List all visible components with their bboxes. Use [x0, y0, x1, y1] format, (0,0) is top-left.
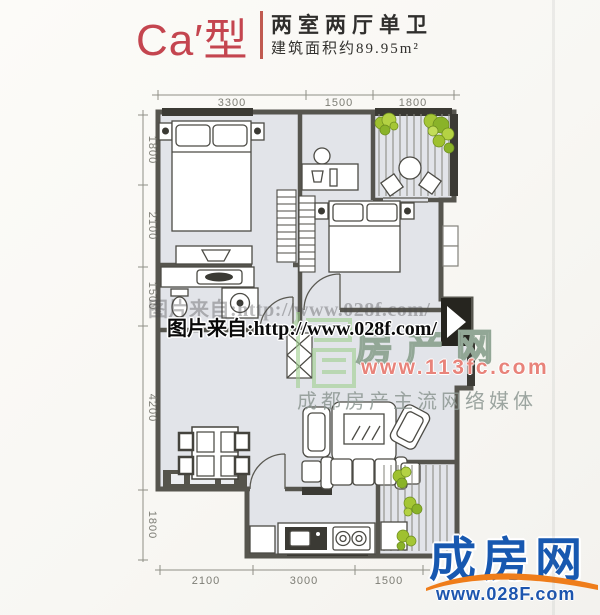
dim-bottom-2: 3000 [290, 575, 318, 587]
bedroom2-bed [315, 201, 414, 272]
dim-top-3: 1800 [399, 97, 427, 109]
sofa-cushion [375, 459, 396, 485]
dining-chair [179, 433, 193, 450]
bay-window [443, 226, 458, 266]
kitchen [250, 523, 375, 554]
portal-slogan-watermark: 成都房产主流网络媒体 [297, 385, 537, 414]
dim-top-1: 3300 [218, 97, 246, 109]
sofa-cushion [331, 459, 352, 485]
wardrobe-bedroom2 [299, 196, 315, 272]
sofa-cushion [353, 459, 374, 485]
scan-crease [552, 0, 555, 615]
wardrobe-bedroom1 [277, 190, 296, 262]
dining-chair [235, 433, 249, 450]
patio-table [399, 157, 421, 179]
scanned-floorplan-page: Ca′型 两室两厅单卫 建筑面积约89.95m² [0, 0, 600, 615]
dim-bottom-1: 2100 [192, 575, 220, 587]
dim-top-2: 1500 [325, 97, 353, 109]
dim-left-5: 1800 [146, 511, 158, 539]
fridge [250, 526, 275, 553]
side-table [302, 461, 321, 482]
dim-left-1: 1800 [146, 136, 158, 164]
dining-chair [235, 457, 249, 474]
watermark-main-text: 图片来自:http://www.028f.com/ [167, 312, 437, 341]
portal-url-watermark: www.113fc.com [361, 356, 549, 380]
dim-bottom-3: 1500 [375, 575, 403, 587]
dining-chair [179, 457, 193, 474]
dim-left-2: 2100 [146, 212, 158, 240]
bedroom1-bed [159, 121, 264, 231]
dim-left-4: 4200 [146, 394, 158, 422]
bedroom1-dresser-tv [176, 246, 252, 264]
